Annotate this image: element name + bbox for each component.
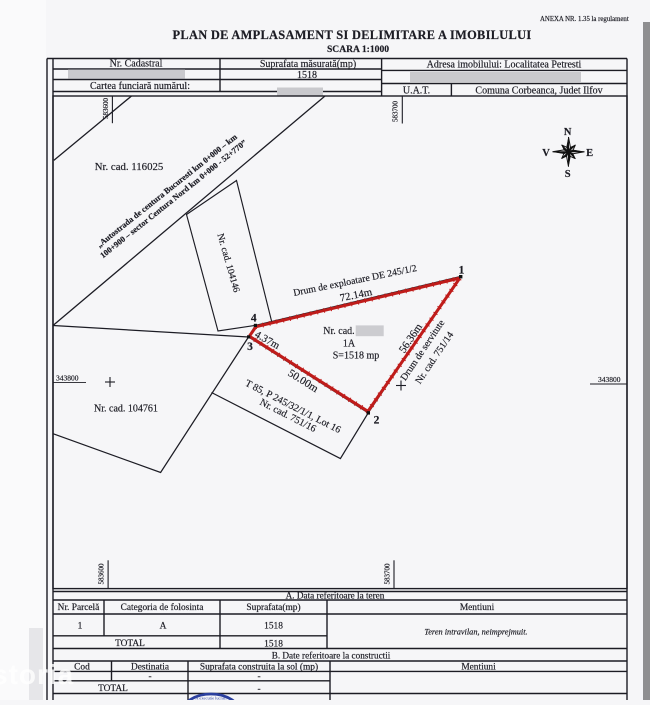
svg-text:S: S bbox=[565, 169, 571, 180]
svg-text:-: - bbox=[257, 685, 260, 695]
svg-text:343800: 343800 bbox=[56, 374, 79, 383]
svg-text:S=1518 mp: S=1518 mp bbox=[333, 351, 379, 362]
svg-text:583600: 583600 bbox=[97, 563, 105, 585]
svg-text:Cod: Cod bbox=[74, 662, 90, 672]
svg-text:PLAN DE AMPLASAMENT SI DELIMIT: PLAN DE AMPLASAMENT SI DELIMITARE A IMOB… bbox=[173, 28, 532, 42]
svg-text:4: 4 bbox=[251, 313, 257, 325]
svg-text:TOTAL: TOTAL bbox=[115, 639, 145, 649]
svg-text:A: A bbox=[160, 622, 167, 632]
svg-text:Nr. cad. 104761: Nr. cad. 104761 bbox=[94, 404, 158, 415]
svg-text:ANEXA NR. 1.35 la regulament: ANEXA NR. 1.35 la regulament bbox=[540, 16, 629, 23]
svg-text:V: V bbox=[542, 148, 550, 159]
svg-text:B. Date referitoare la constru: B. Date referitoare la constructii bbox=[272, 651, 391, 661]
svg-text:Nr. Cadastral: Nr. Cadastral bbox=[110, 59, 163, 70]
svg-text:E: E bbox=[586, 148, 593, 159]
svg-text:583700: 583700 bbox=[383, 563, 391, 585]
svg-text:Destinatia: Destinatia bbox=[131, 662, 170, 672]
svg-text:1: 1 bbox=[78, 622, 83, 632]
svg-text:1518: 1518 bbox=[264, 622, 283, 632]
svg-text:1A: 1A bbox=[343, 338, 356, 349]
svg-text:Suprafata construita la sol (m: Suprafata construita la sol (mp) bbox=[200, 662, 318, 673]
svg-text:Nr. cad. 116025: Nr. cad. 116025 bbox=[95, 161, 164, 173]
svg-text:A. Data referitoare la teren: A. Data referitoare la teren bbox=[286, 591, 385, 601]
svg-text:-: - bbox=[148, 672, 151, 682]
svg-text:Suprafata măsurată(mp): Suprafata măsurată(mp) bbox=[260, 59, 356, 70]
svg-text:Categoria de folosinta: Categoria de folosinta bbox=[121, 602, 205, 613]
svg-text:343800: 343800 bbox=[598, 375, 621, 384]
svg-text:Comuna Corbeanca, Judet Ilfov: Comuna Corbeanca, Judet Ilfov bbox=[475, 86, 602, 97]
svg-text:storia: storia bbox=[0, 659, 74, 690]
svg-text:583700: 583700 bbox=[392, 101, 400, 123]
svg-text:N: N bbox=[564, 127, 572, 138]
svg-text:Suprafata(mp): Suprafata(mp) bbox=[246, 602, 300, 613]
svg-text:1518: 1518 bbox=[264, 640, 283, 650]
svg-text:-: - bbox=[257, 672, 260, 682]
svg-text:Nr. cad.: Nr. cad. bbox=[323, 326, 354, 337]
svg-text:Adresa imobilului: Localitatea: Adresa imobilului: Localitatea Petresti bbox=[427, 59, 582, 70]
svg-text:Teren intravilan, neimprejmuit: Teren intravilan, neimprejmuit. bbox=[424, 628, 527, 637]
svg-text:Nr. Parcelă: Nr. Parcelă bbox=[58, 603, 100, 613]
svg-text:U.A.T.: U.A.T. bbox=[403, 86, 430, 97]
svg-text:TOTAL: TOTAL bbox=[98, 684, 128, 694]
svg-text:1518: 1518 bbox=[297, 70, 317, 81]
svg-text:Cartea funciară numărul:: Cartea funciară numărul: bbox=[90, 81, 190, 92]
svg-text:3: 3 bbox=[247, 341, 253, 353]
svg-text:A executie lucrari: A executie lucrari bbox=[195, 696, 227, 701]
svg-text:Mentiuni: Mentiuni bbox=[460, 603, 495, 613]
svg-text:SCARA 1:1000: SCARA 1:1000 bbox=[327, 44, 389, 55]
svg-text:1: 1 bbox=[459, 265, 465, 277]
svg-text:2: 2 bbox=[374, 415, 380, 427]
svg-text:Mentiuni: Mentiuni bbox=[461, 662, 496, 672]
